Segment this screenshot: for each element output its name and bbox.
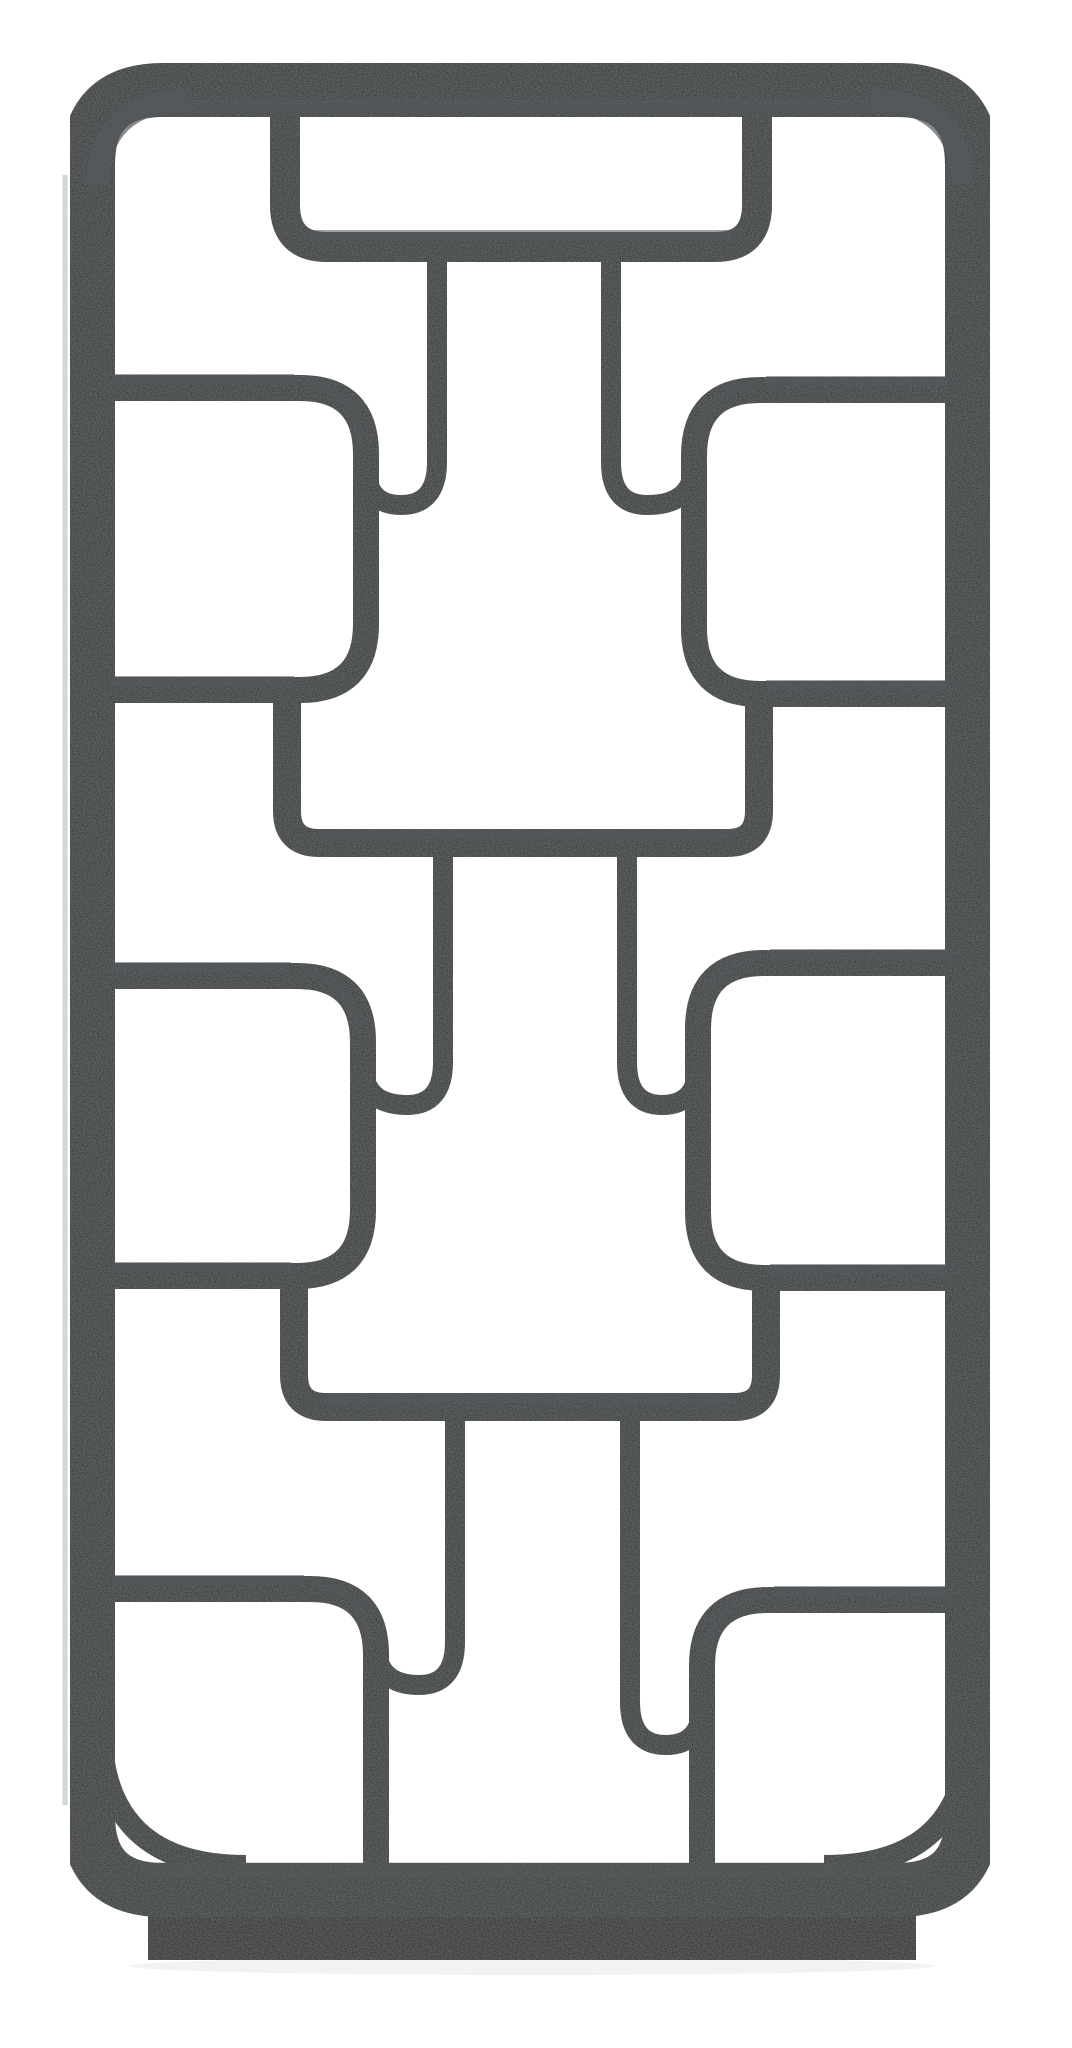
- plinth-base: [148, 1914, 916, 1960]
- background: [0, 0, 1072, 2048]
- product-photo: [0, 0, 1072, 2048]
- bookshelf-illustration: [0, 0, 1072, 2048]
